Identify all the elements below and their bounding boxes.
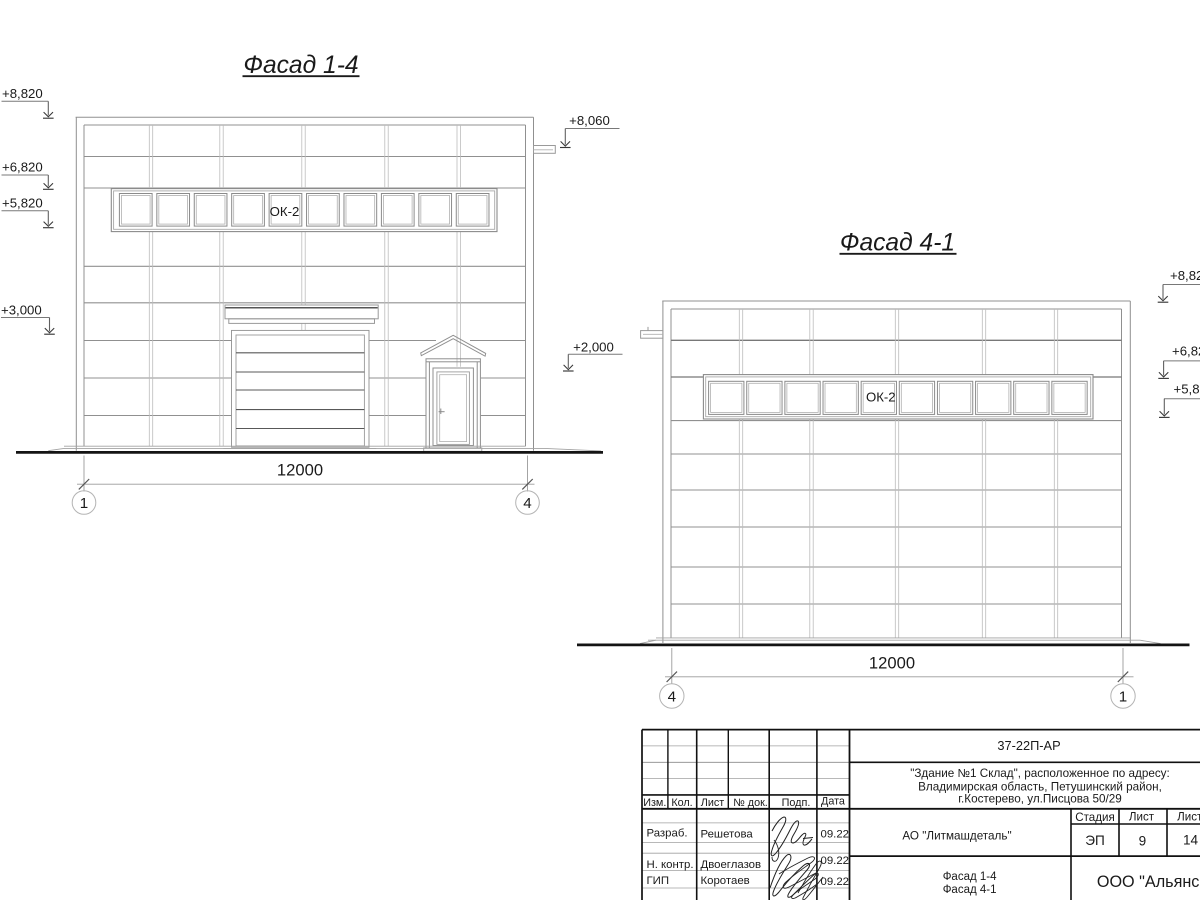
svg-text:Стадия: Стадия bbox=[1075, 811, 1115, 824]
svg-text:+5,820: +5,820 bbox=[1174, 382, 1200, 397]
svg-text:Фасад 1-4: Фасад 1-4 bbox=[243, 52, 358, 79]
svg-text:12000: 12000 bbox=[277, 460, 323, 479]
svg-text:+2,000: +2,000 bbox=[573, 339, 614, 354]
svg-text:12000: 12000 bbox=[869, 653, 915, 672]
svg-text:ОК-2: ОК-2 bbox=[866, 389, 896, 404]
svg-text:+6,820: +6,820 bbox=[1172, 343, 1200, 358]
svg-text:Решетова: Решетова bbox=[701, 829, 754, 841]
svg-text:Разраб.: Разраб. bbox=[647, 828, 688, 840]
svg-text:ОК-2: ОК-2 bbox=[270, 204, 300, 219]
svg-text:ГИП: ГИП bbox=[647, 875, 670, 887]
svg-text:Фасад 4-1: Фасад 4-1 bbox=[840, 230, 955, 257]
svg-text:Кол.: Кол. bbox=[671, 797, 692, 809]
svg-text:+8,820: +8,820 bbox=[2, 86, 43, 101]
svg-text:ЭП: ЭП bbox=[1085, 833, 1105, 848]
svg-text:37-22П-АР: 37-22П-АР bbox=[997, 738, 1060, 753]
svg-text:Фасад 1-4: Фасад 1-4 bbox=[943, 871, 997, 883]
svg-text:"Здание №1 Склад", расположенн: "Здание №1 Склад", расположенное по адре… bbox=[910, 767, 1170, 780]
svg-text:Дата: Дата bbox=[821, 796, 845, 808]
svg-text:Листов: Листов bbox=[1177, 811, 1200, 824]
svg-text:Двоеглазов: Двоеглазов bbox=[701, 859, 762, 871]
svg-text:14: 14 bbox=[1183, 832, 1199, 847]
svg-text:Лист: Лист bbox=[701, 797, 725, 809]
svg-text:ООО "Альянс": ООО "Альянс" bbox=[1097, 873, 1200, 891]
svg-text:09.22: 09.22 bbox=[821, 876, 850, 888]
svg-text:+8,060: +8,060 bbox=[569, 113, 610, 128]
svg-text:г.Костерево, ул.Писцова 50/29: г.Костерево, ул.Писцова 50/29 bbox=[958, 792, 1122, 805]
svg-text:Фасад 4-1: Фасад 4-1 bbox=[943, 884, 997, 896]
svg-text:Н. контр.: Н. контр. bbox=[647, 859, 694, 871]
svg-text:09.22: 09.22 bbox=[821, 829, 850, 841]
svg-text:4: 4 bbox=[523, 495, 531, 512]
svg-text:+6,820: +6,820 bbox=[2, 160, 43, 175]
svg-text:+5,820: +5,820 bbox=[2, 195, 43, 210]
svg-text:9: 9 bbox=[1139, 833, 1147, 848]
svg-text:+3,000: +3,000 bbox=[1, 302, 42, 317]
svg-text:АО "Литмашдеталь": АО "Литмашдеталь" bbox=[902, 830, 1011, 843]
svg-text:Изм.: Изм. bbox=[643, 797, 666, 809]
svg-text:+8,820: +8,820 bbox=[1170, 268, 1200, 283]
svg-text:Подп.: Подп. bbox=[782, 797, 811, 809]
svg-text:№ док.: № док. bbox=[733, 797, 768, 809]
svg-text:09.22: 09.22 bbox=[821, 855, 850, 867]
svg-text:1: 1 bbox=[80, 495, 88, 512]
svg-text:4: 4 bbox=[668, 688, 676, 705]
svg-text:Лист: Лист bbox=[1129, 811, 1155, 824]
svg-text:1: 1 bbox=[1119, 688, 1127, 705]
svg-text:Коротаев: Коротаев bbox=[701, 875, 750, 887]
